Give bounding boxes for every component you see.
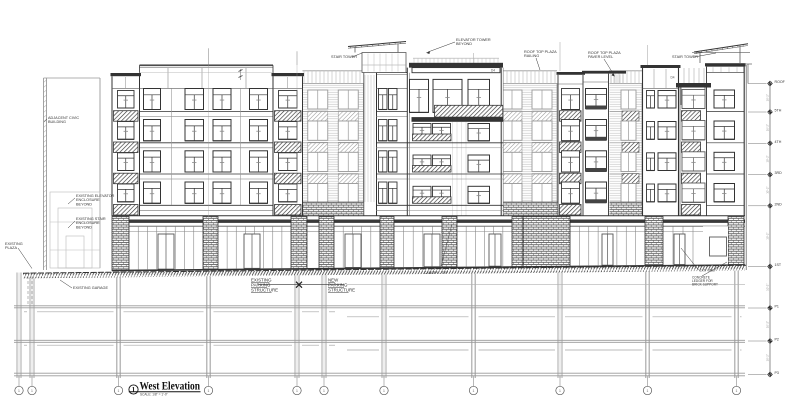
svg-text:1: 1 xyxy=(118,389,120,393)
svg-text:D4: D4 xyxy=(671,76,675,80)
svg-text:1: 1 xyxy=(132,387,136,394)
svg-text:1: 1 xyxy=(383,389,385,393)
svg-text:10'-2": 10'-2" xyxy=(766,321,770,328)
svg-text:1: 1 xyxy=(559,389,561,393)
svg-text:1: 1 xyxy=(31,389,33,393)
svg-text:P3: P3 xyxy=(775,371,779,375)
svg-text:PAVER LEVEL: PAVER LEVEL xyxy=(588,55,613,59)
svg-text:EXISTING GARAGE: EXISTING GARAGE xyxy=(73,286,108,290)
svg-text:West Elevation: West Elevation xyxy=(140,379,201,393)
svg-text:STAIR TOWER: STAIR TOWER xyxy=(331,55,357,59)
svg-text:10'-2": 10'-2" xyxy=(766,284,770,291)
svg-text:1: 1 xyxy=(736,389,738,393)
svg-text:1: 1 xyxy=(208,389,210,393)
svg-text:P2: P2 xyxy=(775,338,779,342)
svg-text:D4: D4 xyxy=(491,69,495,73)
svg-text:SCALE: 1/8" = 1'-0": SCALE: 1/8" = 1'-0" xyxy=(140,392,168,396)
svg-text:PLAZA: PLAZA xyxy=(5,246,17,250)
svg-text:ROOF: ROOF xyxy=(775,80,786,84)
svg-text:10'-2": 10'-2" xyxy=(766,187,770,194)
svg-text:1ST: 1ST xyxy=(775,263,782,267)
svg-text:BEYOND: BEYOND xyxy=(76,202,92,206)
svg-text:1: 1 xyxy=(473,389,475,393)
svg-text:STRUCTURE: STRUCTURE xyxy=(251,288,278,293)
svg-text:10'-2": 10'-2" xyxy=(766,124,770,131)
svg-text:2ND: 2ND xyxy=(775,202,783,206)
svg-text:10'-2": 10'-2" xyxy=(766,354,770,361)
svg-text:10'-2": 10'-2" xyxy=(766,233,770,240)
svg-text:10'-2": 10'-2" xyxy=(766,94,770,101)
svg-text:5TH: 5TH xyxy=(775,109,782,113)
svg-text:P1: P1 xyxy=(775,305,779,309)
svg-text:1: 1 xyxy=(647,389,649,393)
svg-text:BUILDING: BUILDING xyxy=(48,120,66,124)
svg-text:STRUCTURE: STRUCTURE xyxy=(328,288,355,293)
svg-text:1: 1 xyxy=(18,389,20,393)
svg-text:1: 1 xyxy=(323,389,325,393)
svg-text:10'-2": 10'-2" xyxy=(766,155,770,162)
svg-text:4TH: 4TH xyxy=(775,140,782,144)
svg-text:1: 1 xyxy=(296,389,298,393)
svg-text:CANOPY - TYP: CANOPY - TYP xyxy=(424,271,449,275)
svg-text:BEYOND: BEYOND xyxy=(456,42,472,46)
svg-text:BEYOND: BEYOND xyxy=(76,225,92,229)
svg-text:RAILING: RAILING xyxy=(524,54,539,58)
svg-text:3RD: 3RD xyxy=(775,171,783,175)
svg-text:BRICK SUPPORT: BRICK SUPPORT xyxy=(692,283,718,287)
